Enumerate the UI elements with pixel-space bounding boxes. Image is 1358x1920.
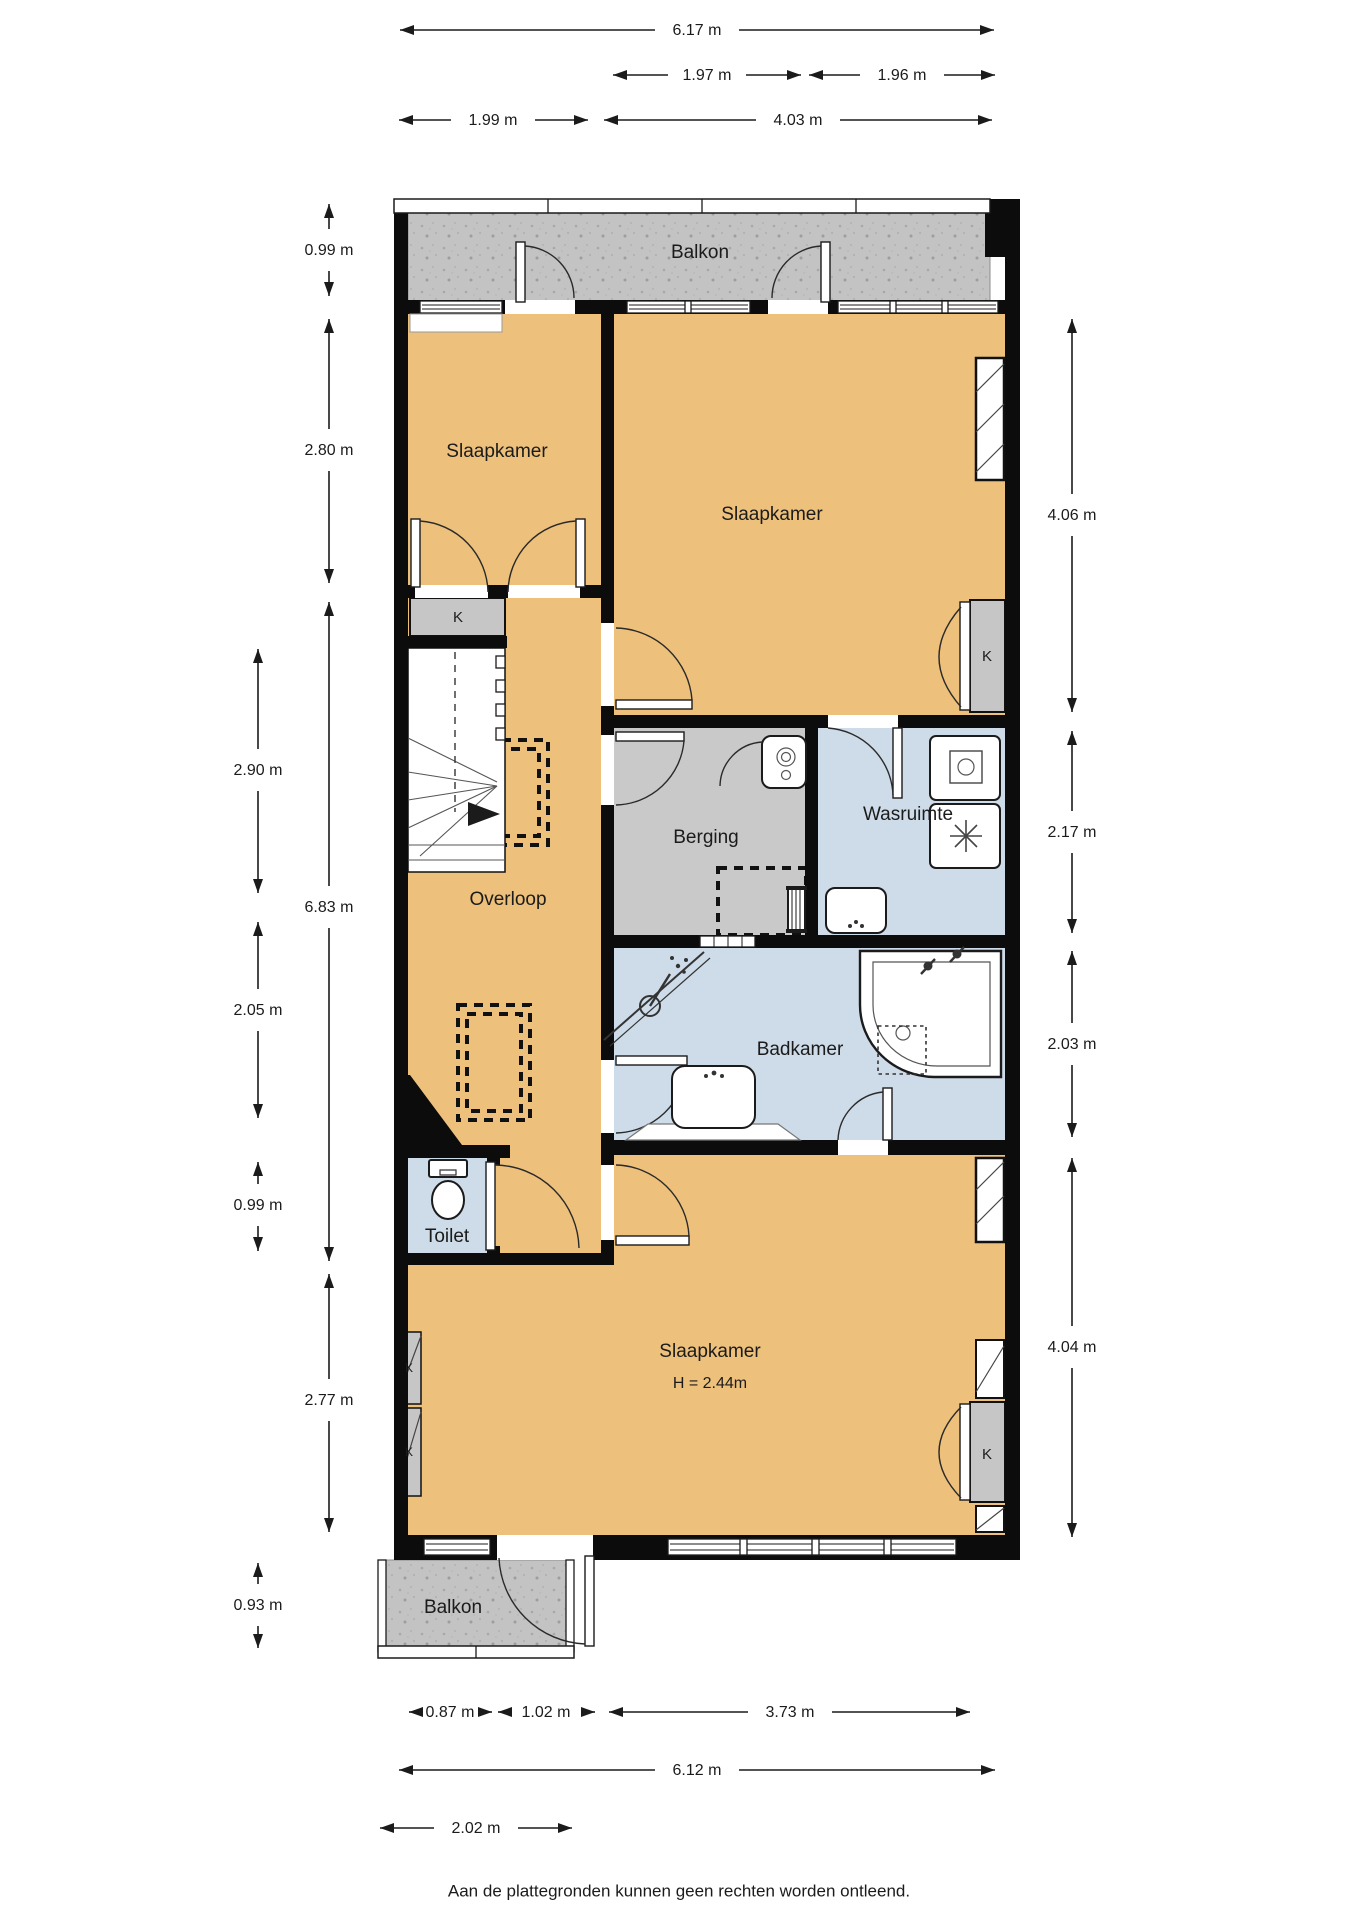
dim-left-bedroom-bottom: 2.77 m <box>305 1392 354 1409</box>
door-laundry <box>893 728 902 798</box>
label-closet-3: K <box>982 1446 992 1463</box>
dim-bottom-total: 6.12 m <box>673 1762 722 1779</box>
window-bedroom-right-top-1 <box>627 301 750 313</box>
wall-bedroom-right-bottom <box>614 715 1005 728</box>
dim-right-bedroom: 4.06 m <box>1048 507 1097 524</box>
shaft-bottom-bedroom <box>976 1158 1004 1242</box>
dim-right-laundry: 2.17 m <box>1048 824 1097 841</box>
door-toilet <box>486 1162 495 1250</box>
dimensions-left: 0.99 m 2.80 m 2.90 m 6.83 m 2.05 m 0.99 … <box>234 204 354 1648</box>
label-closet-5: K <box>405 1445 413 1459</box>
label-storage: Berging <box>673 827 739 848</box>
staircase <box>408 648 505 872</box>
dim-left-toilet: 0.99 m <box>234 1197 283 1214</box>
wall-outer-left <box>394 199 408 1560</box>
balcony-bottom-railing-right <box>566 1560 574 1652</box>
bedroom-bottom-floor-left <box>408 1265 614 1535</box>
closet-bottom-bedroom-door <box>960 1404 970 1500</box>
label-bathroom: Badkamer <box>757 1039 844 1060</box>
label-closet-4: K <box>405 1361 413 1375</box>
dim-left-landing: 2.05 m <box>234 1002 283 1019</box>
wall-landing-bottom <box>394 1253 614 1265</box>
wall-bathroom-bottom <box>601 1140 1005 1155</box>
wall-outer-right <box>1005 199 1020 1560</box>
laundry-sink-icon <box>826 888 886 933</box>
dim-bottom-c: 3.73 m <box>766 1704 815 1721</box>
balcony-top-railing <box>394 199 990 213</box>
dim-top-total: 6.17 m <box>673 22 722 39</box>
balcony-bottom-railing-left <box>378 1560 386 1652</box>
door-bedroom-bottom <box>616 1236 689 1245</box>
door-bedroom-left-closet <box>411 519 420 587</box>
floorplan-page: Balkon Slaapkamer Slaapkamer K K Overloo… <box>0 0 1358 1920</box>
shaft-right-bedroom <box>976 358 1004 480</box>
label-laundry: Wasruimte <box>863 804 953 825</box>
radiator-icon <box>786 886 807 933</box>
floorplan-drawing: Balkon Slaapkamer Slaapkamer K K Overloo… <box>0 0 1358 1920</box>
dim-top-right-room: 4.03 m <box>774 112 823 129</box>
dim-left-hall-total: 6.83 m <box>305 899 354 916</box>
door-bedroom-left-hall <box>576 519 585 587</box>
closet-right-bedroom-door <box>960 602 970 710</box>
label-bedroom-bottom: Slaapkamer <box>659 1341 761 1362</box>
label-balcony-bottom: Balkon <box>424 1597 482 1618</box>
dim-bottom-a: 0.87 m <box>426 1704 475 1721</box>
dim-left-balcony: 0.99 m <box>305 242 354 259</box>
door-storage <box>616 732 684 741</box>
door-bedroom-right <box>616 700 692 709</box>
wall-storage-bottom <box>601 935 1005 948</box>
label-closet-2: K <box>982 648 992 665</box>
dim-top-window-left: 1.97 m <box>683 67 732 84</box>
dimensions-bottom: 0.87 m 1.02 m 3.73 m 6.12 m 2.02 m <box>380 1704 995 1837</box>
dim-bottom-b: 1.02 m <box>522 1704 571 1721</box>
washing-machine-icon <box>930 736 1000 800</box>
window-bedroom-left-top <box>420 301 502 313</box>
label-balcony-top: Balkon <box>671 242 729 263</box>
door-bathroom-main <box>616 1056 687 1065</box>
door-balcony-top-left <box>516 242 525 302</box>
label-closet-1: K <box>453 609 463 626</box>
dimensions-right: 4.06 m 2.17 m 2.03 m 4.04 m <box>1048 319 1097 1537</box>
window-sill-left <box>410 314 502 332</box>
label-toilet: Toilet <box>425 1226 470 1247</box>
label-bedroom-left: Slaapkamer <box>446 441 548 462</box>
dim-top-left-room: 1.99 m <box>469 112 518 129</box>
dim-left-bedroom: 2.80 m <box>305 442 354 459</box>
window-bottom-small <box>424 1539 490 1555</box>
disclaimer-text: Aan de plattegronden kunnen geen rechten… <box>448 1881 910 1900</box>
dim-top-window-right: 1.96 m <box>878 67 927 84</box>
dim-left-balcony-bottom: 0.93 m <box>234 1597 283 1614</box>
window-storage-bathroom <box>700 936 755 947</box>
toilet-icon <box>429 1160 467 1219</box>
wall-below-closet <box>394 636 507 648</box>
dim-bottom-balcony: 2.02 m <box>452 1820 501 1837</box>
window-bedroom-right-top-2 <box>838 301 998 313</box>
dim-right-bathroom: 2.03 m <box>1048 1036 1097 1053</box>
label-landing: Overloop <box>469 889 546 910</box>
dim-right-bedroom-bottom: 4.04 m <box>1048 1339 1097 1356</box>
door-bathroom-bedroom <box>883 1088 892 1140</box>
window-bottom-large <box>668 1539 956 1555</box>
dim-left-stairs: 2.90 m <box>234 762 283 779</box>
door-balcony-top-right <box>821 242 830 302</box>
room-floors <box>386 213 1005 1646</box>
door-balcony-bottom <box>585 1556 594 1646</box>
dimensions-top: 6.17 m 1.97 m 1.96 m 1.99 m 4.03 m <box>399 22 995 129</box>
label-bedroom-bottom-height: H = 2.44m <box>673 1375 747 1392</box>
label-bedroom-right: Slaapkamer <box>721 504 823 525</box>
